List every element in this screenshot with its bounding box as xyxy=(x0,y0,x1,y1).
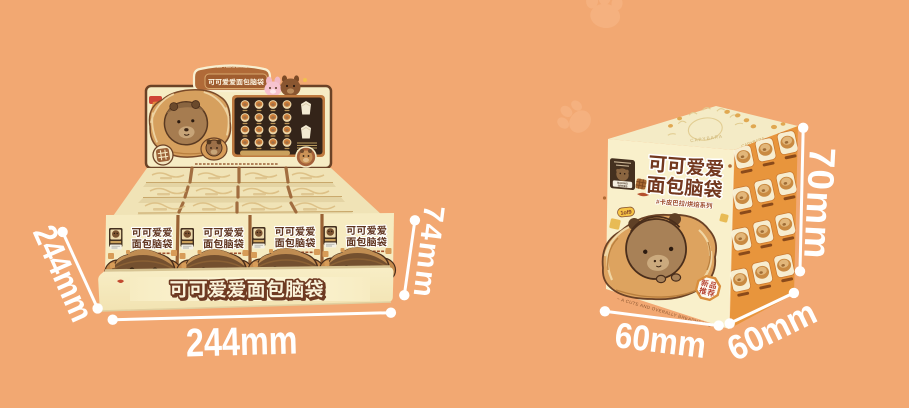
svg-text:244mm: 244mm xyxy=(185,317,298,365)
svg-text:CAPYBARA BREAD: CAPYBARA BREAD xyxy=(217,65,248,69)
svg-text:1of9: 1of9 xyxy=(620,210,632,217)
svg-text:70mm: 70mm xyxy=(796,146,843,261)
